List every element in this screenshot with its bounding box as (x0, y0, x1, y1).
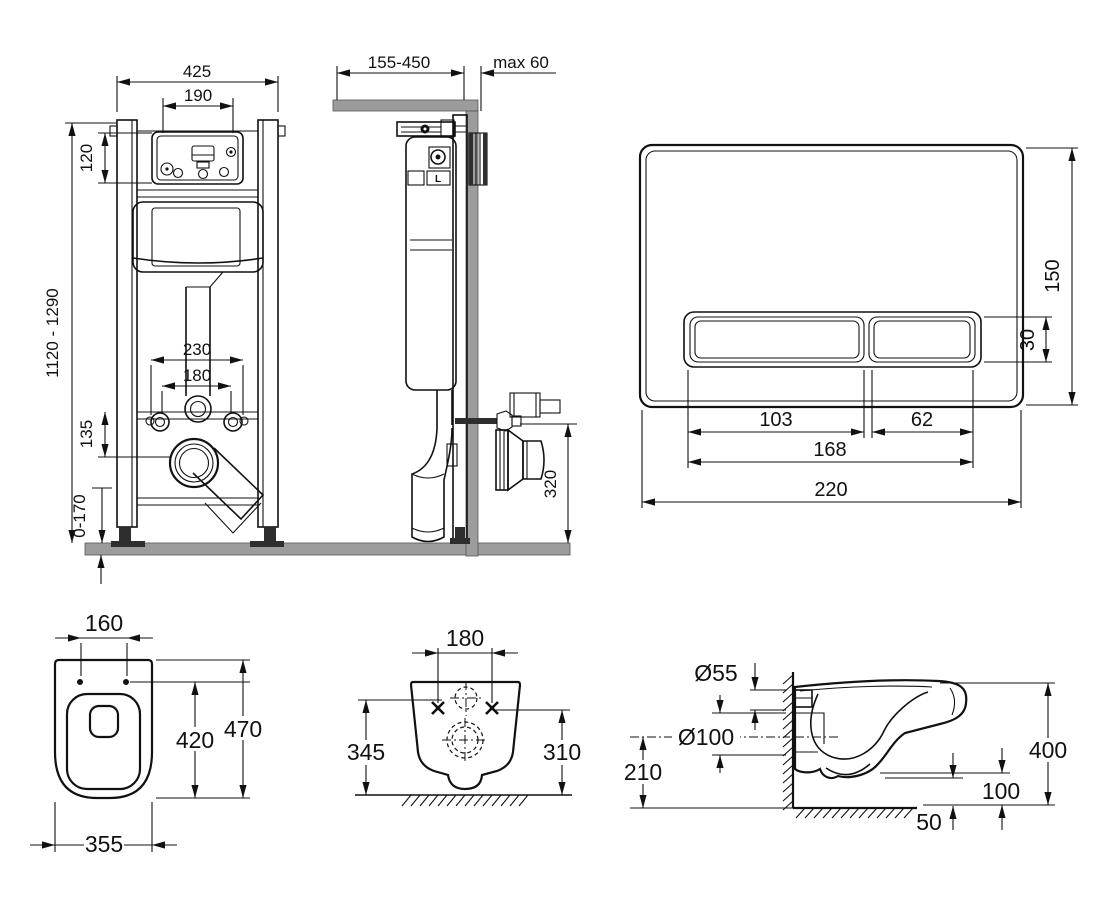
dim-window-width-label: 190 (184, 86, 212, 105)
flush-plate-view: 150 30 103 62 168 220 (640, 145, 1078, 508)
dim-frame-height: 1120 - 1290 (43, 123, 117, 543)
frame-front-view: 425 190 1120 - 1290 120 230 180 (43, 62, 570, 584)
dim-top-width: 355 (30, 802, 177, 857)
technical-drawing-sheet: 425 190 1120 - 1290 120 230 180 (0, 0, 1120, 909)
wall-hatch (783, 675, 793, 810)
dim-frame-height-label: 1120 - 1290 (43, 288, 62, 377)
dim-buttons-width: 168 (688, 439, 973, 462)
dim-top-hole-spacing: 160 (55, 610, 153, 676)
seat-opening (67, 694, 140, 789)
dim-inlet-dia: Ø55 (694, 660, 786, 730)
dim-top-hole-spacing-label: 160 (85, 610, 123, 636)
floor-slab (85, 543, 570, 555)
dim-depth-range-label: 155-450 (368, 53, 430, 72)
frame-right-rail (258, 120, 278, 527)
dim-bottom-clearance: 100 (880, 748, 1020, 830)
toilet-installation-drawing: 425 190 1120 - 1290 120 230 180 (0, 0, 1120, 909)
dim-button-right-label: 62 (911, 409, 933, 431)
dim-frame-width-label: 425 (183, 62, 211, 81)
rear-mount-right (486, 702, 498, 714)
dim-rear-height-left: 345 (346, 700, 442, 795)
flush-button-large (690, 317, 864, 362)
dim-rear-height-right-label: 310 (543, 739, 581, 765)
cistern-mark-label: L (435, 174, 441, 185)
dim-fix-spacing-inner: 180 (162, 366, 231, 412)
dim-trap-offset: 50 (885, 753, 963, 835)
wall-bracket (397, 120, 466, 137)
dim-feet-range: 0-170 (70, 488, 112, 584)
frame-rail-side (453, 115, 467, 543)
dim-depth-range: 155-450 (337, 53, 464, 100)
dim-fix-spacing-inner-label: 180 (183, 366, 211, 385)
flush-button-small (869, 317, 975, 362)
bowl-rear-view: 180 345 310 (346, 625, 583, 806)
dim-wall-max-label: max 60 (493, 53, 549, 72)
bowl-side-view: Ø55 Ø100 210 400 100 (624, 660, 1068, 835)
frame-side-view: L (333, 53, 577, 556)
floor-hatch (796, 808, 913, 818)
service-window (152, 132, 243, 184)
dim-outlet-dia-label: Ø100 (678, 724, 734, 750)
dim-outlet-height-label: 320 (541, 470, 560, 498)
mount-hole-left (77, 679, 83, 685)
dim-plate-height: 150 (1026, 148, 1078, 405)
dim-button-height-label: 30 (1017, 329, 1039, 351)
button-slot (684, 312, 981, 367)
mount-hole-right (123, 679, 129, 685)
cistern-side: L (406, 137, 457, 542)
dim-rear-hole-spacing-label: 180 (446, 625, 484, 651)
dim-window-width: 190 (163, 86, 233, 133)
dim-button-left-label: 103 (759, 409, 792, 431)
bowl-drain-hole (90, 706, 118, 737)
dim-rear-hole-spacing: 180 (412, 625, 518, 703)
dim-top-length-label: 470 (224, 716, 262, 742)
dim-window-height-label: 120 (77, 144, 96, 172)
rear-inlet-port (450, 681, 482, 716)
dim-fix-spacing-outer-label: 230 (183, 340, 211, 359)
dim-window-height: 120 (77, 133, 152, 183)
ground-hatch (402, 795, 528, 806)
dim-wall-max: max 60 (481, 53, 556, 111)
rear-mount-left (432, 702, 444, 714)
dim-buttons-width-label: 168 (813, 439, 846, 461)
dim-inlet-dia-label: Ø55 (694, 660, 737, 686)
drain-bend-front (170, 439, 263, 533)
dim-plate-height-label: 150 (1042, 259, 1064, 292)
dim-button-right: 62 (872, 409, 973, 432)
bowl-side-profile (795, 680, 966, 778)
dim-bottom-clearance-label: 100 (982, 778, 1020, 804)
dim-side-height-label: 400 (1029, 737, 1067, 763)
dim-button-height: 30 (984, 317, 1052, 362)
dim-outlet-axis-height-label: 210 (624, 759, 662, 785)
dim-top-inner-length: 420 (176, 682, 214, 798)
ceiling-support (333, 100, 478, 111)
dim-top-inner-length-label: 420 (176, 727, 214, 753)
dim-top-width-label: 355 (85, 831, 123, 857)
dim-outlet-height: 320 (520, 424, 577, 543)
dim-trap-offset-label: 50 (916, 809, 942, 835)
dim-feet-range-label: 0-170 (70, 494, 89, 537)
dim-plate-width-label: 220 (814, 479, 847, 501)
dim-outlet-dia: Ø100 (672, 695, 786, 773)
drain-connector-side (496, 430, 544, 490)
dim-rear-height-left-label: 345 (347, 739, 385, 765)
bowl-top-view: 160 470 420 355 (30, 610, 262, 857)
dim-fix-to-drain-label: 135 (77, 420, 96, 448)
frame-left-rail (117, 120, 137, 527)
rear-outlet-port (442, 718, 488, 763)
dim-rear-height-right: 310 (495, 710, 583, 795)
